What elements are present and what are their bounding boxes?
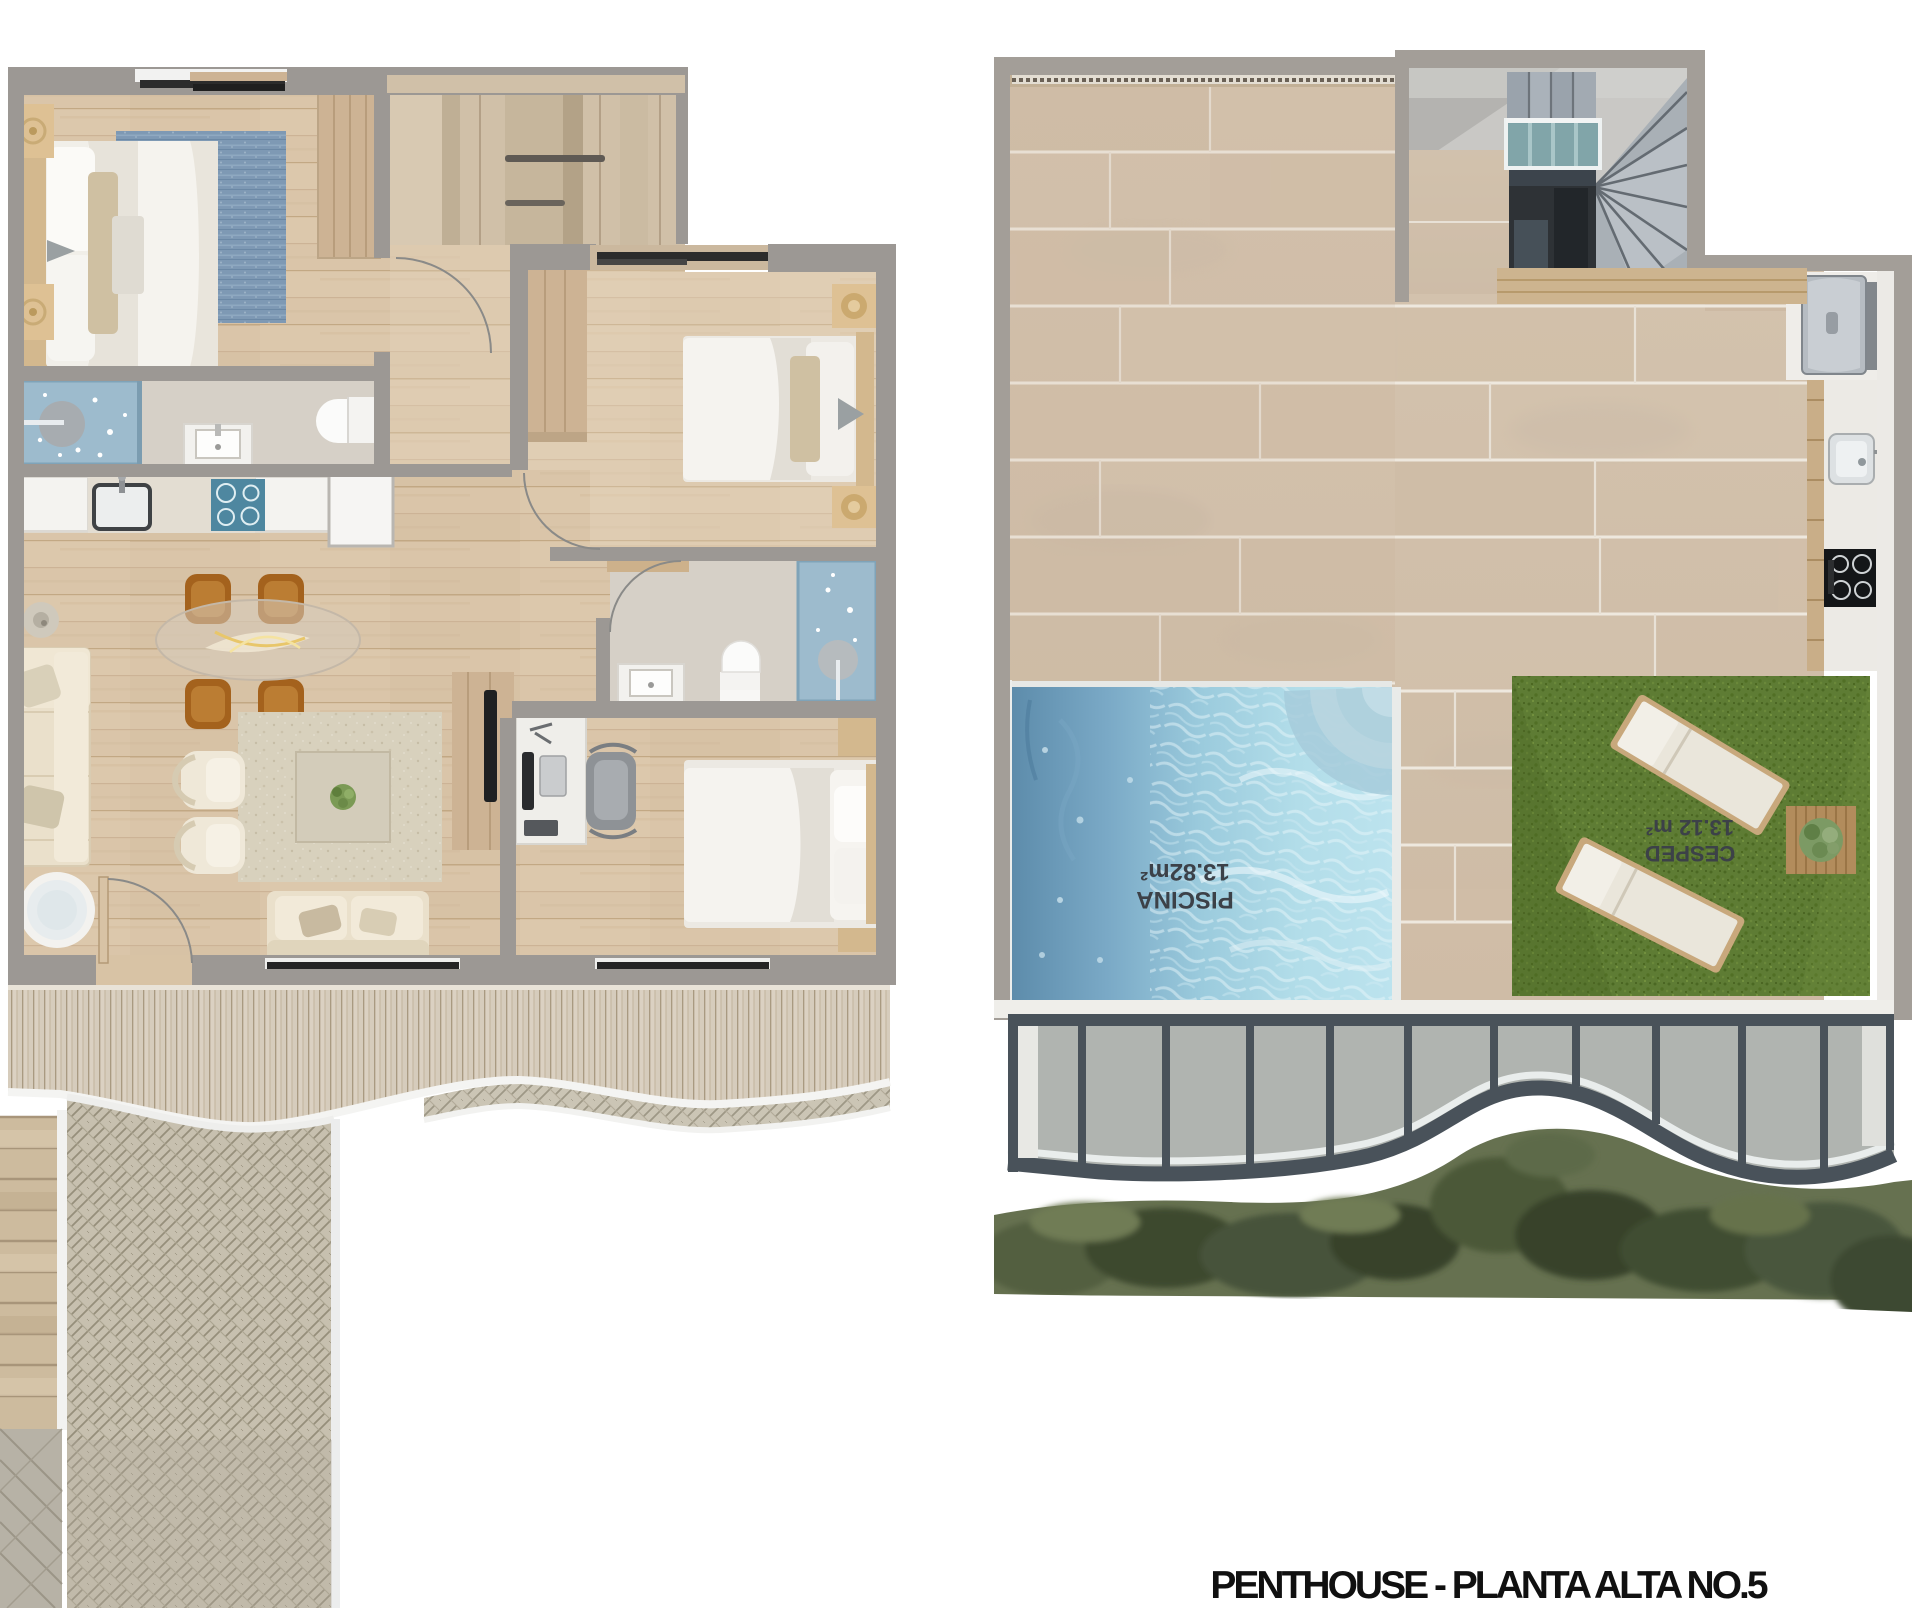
svg-text:PISCINA: PISCINA: [1136, 886, 1233, 913]
svg-text:13.12 m²: 13.12 m²: [1646, 815, 1734, 840]
svg-text:PENTHOUSE - PLANTA ALTA NO.5: PENTHOUSE - PLANTA ALTA NO.5: [1210, 1564, 1767, 1607]
svg-text:CESPED: CESPED: [1645, 841, 1735, 866]
svg-text:13.82m²: 13.82m²: [1140, 858, 1229, 885]
